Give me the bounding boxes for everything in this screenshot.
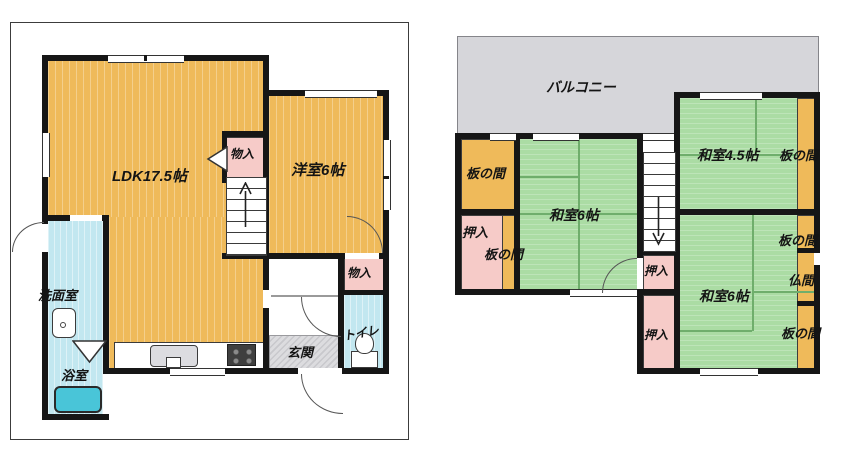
room-itanoma-e-label: 板の間 (781, 327, 820, 340)
window-mullion (144, 55, 147, 61)
room-itanoma-d-label: 板の間 (778, 234, 817, 247)
room-closet1-label: 物入 (230, 148, 254, 160)
window (170, 368, 225, 376)
folding-door-icon (72, 340, 107, 364)
window (533, 133, 579, 141)
window-mullion (383, 176, 389, 179)
up-arrow-icon (239, 182, 252, 228)
room-entrance-label: 玄関 (287, 346, 313, 359)
room-washitsu6-b-label: 和室6帖 (699, 289, 749, 303)
wall (222, 131, 269, 137)
window (700, 92, 762, 100)
room-bath-label: 浴室 (61, 369, 87, 382)
floorplan-canvas: LDK17.5帖 物入 洋室6帖 洗面室 浴室 玄関 トイレ 物入 バルコニー (0, 0, 843, 451)
tatami-line (680, 330, 752, 332)
balcony-fill (457, 36, 819, 97)
tatami-line (752, 291, 814, 293)
balcony-door (643, 133, 674, 141)
window (305, 90, 377, 98)
wall (383, 90, 389, 374)
wall (103, 368, 389, 374)
down-arrow-icon (652, 196, 665, 246)
room-washroom-label: 洗面室 (38, 289, 77, 302)
closet-door-arrow-icon (206, 146, 228, 172)
wall (797, 301, 820, 306)
wall (637, 289, 680, 295)
room-closet2-label: 物入 (347, 267, 371, 279)
door-opening (70, 215, 102, 221)
balcony-fill-lower (457, 94, 681, 136)
wall (455, 289, 570, 295)
door-opening (263, 290, 269, 308)
stove-icon (227, 344, 256, 366)
wall (637, 293, 643, 374)
window (700, 368, 758, 376)
door-opening (345, 253, 379, 259)
room-oshiire-a-label: 押入 (462, 226, 488, 239)
room-itanoma-b-label: 板の間 (484, 248, 523, 261)
door-opening (814, 253, 820, 265)
room-oshiire-c-label: 押入 (644, 329, 668, 341)
window (490, 133, 516, 141)
bathtub-icon (54, 386, 102, 413)
room-western-label: 洋室6帖 (291, 163, 344, 178)
window (383, 140, 391, 210)
room-butsuma-label: 仏間 (788, 274, 814, 287)
room-ldk-label: LDK17.5帖 (112, 169, 187, 184)
window (42, 133, 50, 177)
washbasin-drain-icon (60, 322, 66, 328)
room-oshiire-b-label: 押入 (644, 265, 668, 277)
kitchen-faucet-icon (166, 357, 181, 368)
room-itanoma-a-label: 板の間 (466, 167, 505, 180)
room-itanoma-c-label: 板の間 (779, 149, 818, 162)
room-washitsu45-label: 和室4.5帖 (697, 148, 758, 162)
wall (514, 133, 520, 295)
wall (42, 414, 109, 420)
wall (338, 290, 389, 295)
tatami-line (520, 176, 578, 178)
balcony-label: バルコニー (546, 80, 616, 94)
wall (674, 209, 820, 215)
tatami-line (752, 215, 754, 331)
wall (455, 209, 520, 215)
room-washitsu6-a-label: 和室6帖 (549, 208, 599, 222)
tatami-line (755, 98, 757, 154)
